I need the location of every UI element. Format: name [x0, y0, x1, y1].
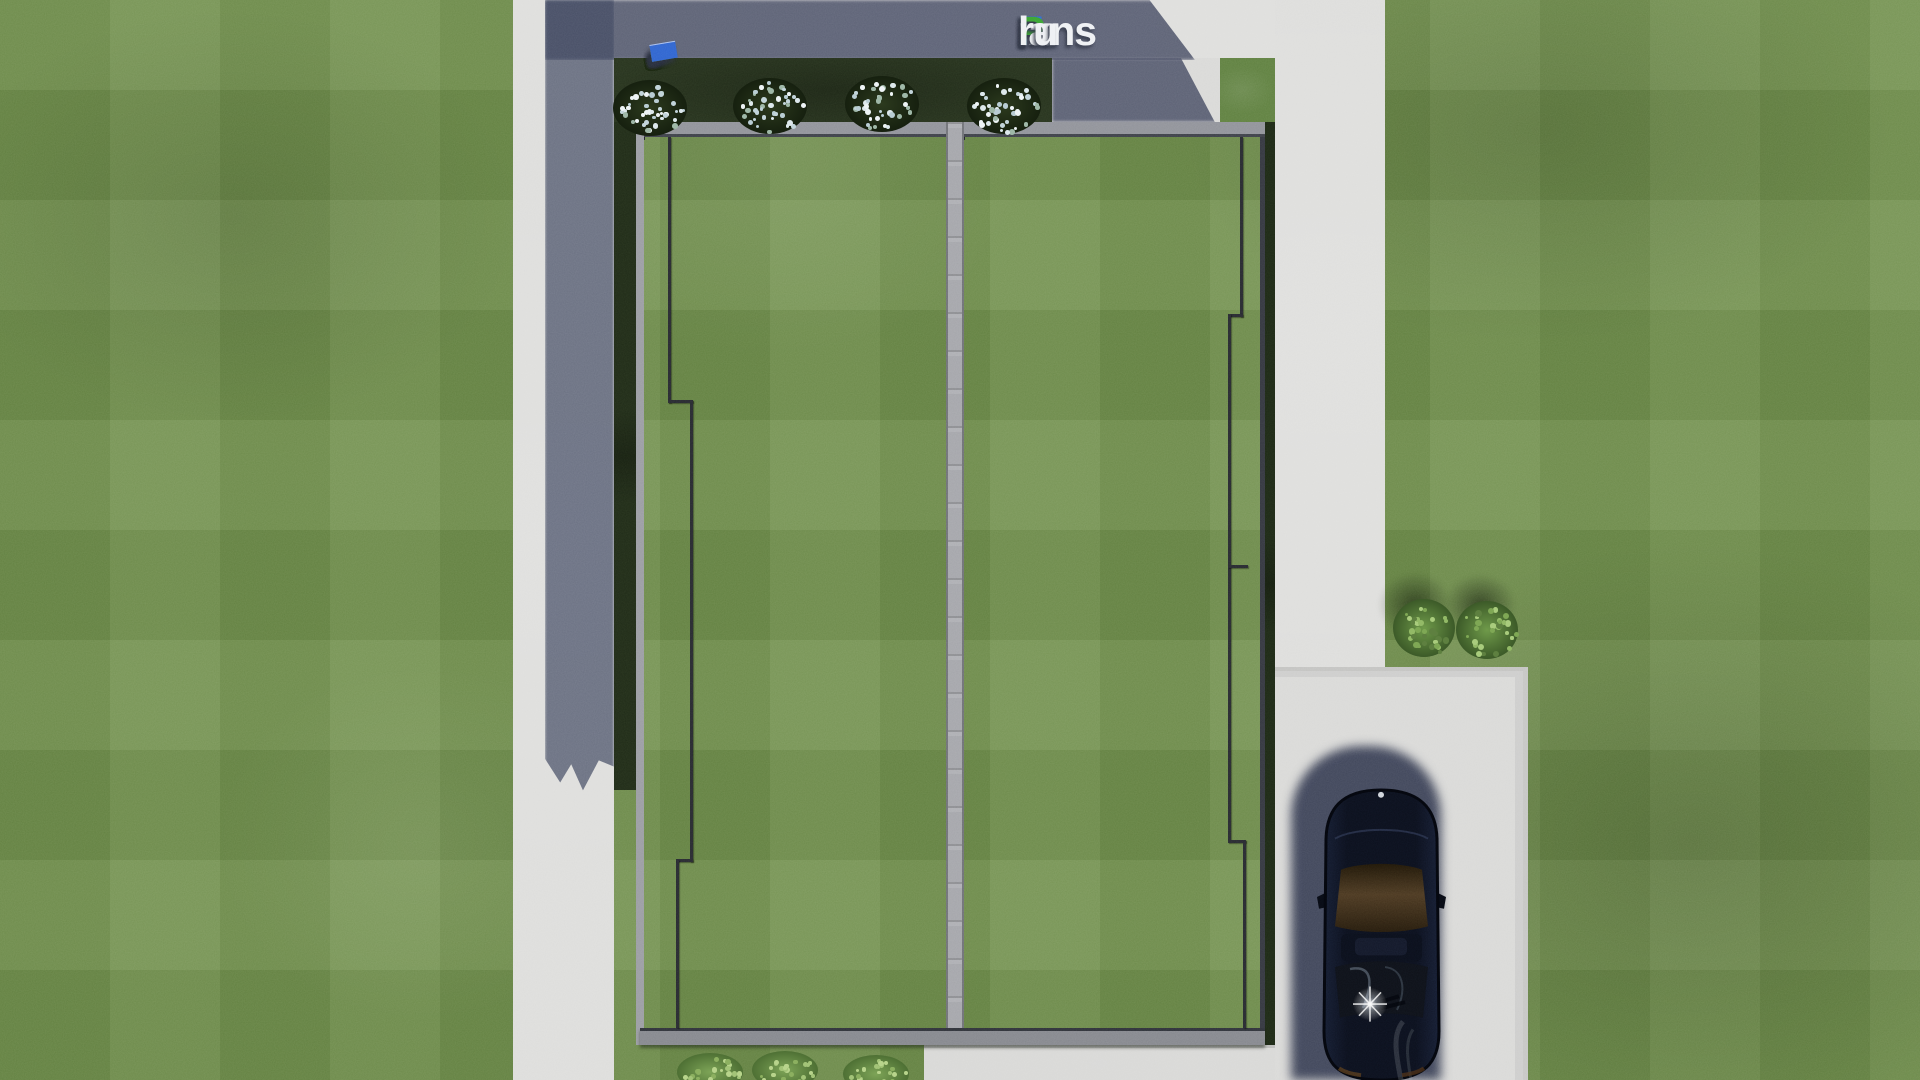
bush-dot [904, 1071, 908, 1075]
roof-cable [1240, 137, 1243, 317]
bush-dot [1423, 608, 1427, 612]
bush-dot [980, 105, 986, 111]
flower-bush [967, 78, 1041, 134]
bush-dot [900, 84, 906, 90]
bush-dot [756, 125, 759, 128]
bush-dot [875, 116, 880, 121]
bush-dot [774, 1060, 779, 1065]
bush-dot [784, 1064, 788, 1068]
bush-dot [1422, 629, 1427, 634]
roof-cable [676, 860, 679, 1028]
bush-dot [801, 1075, 806, 1080]
roof-cable [1228, 565, 1248, 568]
bush-dot [1503, 613, 1509, 619]
bush-dot [1490, 628, 1495, 633]
bush-dot [1474, 626, 1479, 631]
bush-dot [658, 107, 662, 111]
bush-dot [1001, 89, 1007, 95]
bush-dot [768, 103, 774, 109]
bush-dot [725, 1059, 731, 1065]
logo-letter: ru [1018, 8, 1057, 55]
bush-dot [633, 94, 638, 99]
bush-dot [620, 106, 625, 111]
bush-dot [1492, 624, 1496, 628]
bush-dot [761, 97, 767, 103]
bush-dot [741, 104, 745, 108]
bush-dot [626, 106, 630, 110]
bush-dot [720, 1069, 723, 1072]
render-scene: FixPlans.ru [0, 0, 1920, 1080]
bush-dot [1502, 620, 1506, 624]
roof-tile [964, 137, 965, 140]
bush-dot [873, 125, 878, 130]
bush-dot [655, 85, 660, 90]
bush-dot [1422, 634, 1426, 638]
bush-dot [748, 120, 753, 125]
bush-dot [1443, 637, 1450, 644]
bush-dot [642, 123, 646, 127]
bush-dot [688, 1076, 693, 1080]
bush-dot [889, 112, 895, 118]
bush-dot [879, 86, 885, 92]
bush-dot [742, 114, 747, 119]
bush-dot [1003, 103, 1008, 108]
bush-dot [1411, 634, 1416, 639]
bush-dot [868, 126, 872, 130]
bush-dot [903, 102, 908, 107]
bush-dot [767, 87, 771, 91]
bush-dot [1505, 631, 1509, 635]
bush-dot [1488, 608, 1494, 614]
bush-dot [877, 1071, 880, 1074]
roof-cable [668, 137, 671, 403]
bush-dot [997, 102, 1002, 107]
bush-dot [1430, 617, 1435, 622]
bush-dot [672, 123, 678, 129]
bush-dot [671, 101, 676, 106]
bush-dot [986, 121, 991, 126]
bush-dot [652, 116, 656, 120]
bush-dot [760, 107, 763, 110]
bush-dot [780, 113, 784, 117]
bush-dot [635, 119, 639, 123]
bush-dot [776, 96, 781, 101]
bush-dot [1472, 639, 1478, 645]
bush-dot [663, 113, 668, 118]
grass-patch-corner [1220, 58, 1275, 122]
bush-dot [782, 88, 786, 92]
bush-dot [755, 110, 759, 114]
bush-dot [789, 1072, 794, 1077]
roof-plane-right [964, 137, 1260, 1028]
bush-dot [886, 125, 890, 129]
roof-eaves-bottom [640, 1028, 1265, 1045]
bush-dot [1493, 651, 1499, 657]
bush-dot [641, 113, 645, 117]
green-bush [1456, 601, 1518, 659]
bush-dot [1008, 88, 1012, 92]
bush-dot [653, 123, 658, 128]
terrace [924, 1045, 1275, 1080]
bush-dot [1014, 127, 1017, 130]
bush-dot [989, 107, 995, 113]
bush-dot [645, 128, 651, 134]
bush-dot [879, 110, 882, 113]
bush-dot [866, 99, 870, 103]
bush-dot [784, 95, 787, 98]
bush-dot [644, 104, 648, 108]
bush-dot [908, 110, 913, 115]
bush-dot [1019, 95, 1024, 100]
bush-dot [877, 95, 883, 101]
bush-dot [852, 94, 857, 99]
bush-dot [628, 103, 631, 106]
bush-dot [623, 112, 628, 117]
bush-dot [1422, 641, 1427, 646]
bush-dot [890, 83, 896, 89]
bush-dot [984, 96, 988, 100]
roof-cable [1243, 840, 1246, 1028]
bush-dot [786, 103, 790, 107]
bush-dot [795, 98, 800, 103]
green-bush [1393, 599, 1455, 657]
bush-dot [749, 101, 754, 106]
bush-dot [714, 1057, 719, 1062]
roof-edge-right [1260, 137, 1265, 1028]
bush-dot [1466, 635, 1469, 638]
bush-dot [675, 110, 678, 113]
bush-dot [654, 99, 659, 104]
bush-dot [771, 1073, 776, 1078]
bush-dot [1035, 103, 1038, 106]
bush-dot [679, 109, 682, 112]
flower-bush [613, 80, 687, 136]
bush-dot [1465, 616, 1468, 619]
bush-dot [881, 114, 885, 118]
bush-dot [975, 102, 979, 106]
bush-dot [658, 91, 664, 97]
bush-dot [1418, 620, 1424, 626]
bush-dot [871, 87, 875, 91]
roof-cable [690, 400, 693, 862]
bush-dot [712, 1067, 718, 1073]
bush-dot [767, 81, 771, 85]
bush-dot [769, 1066, 773, 1070]
bush-dot [860, 85, 864, 89]
bush-dot [737, 1071, 743, 1077]
bush-dot [745, 108, 751, 114]
bush-dot [856, 1074, 861, 1079]
bush-dot [892, 1072, 897, 1077]
walkway-right [1275, 0, 1385, 667]
bush-dot [1476, 651, 1483, 658]
bush-dot [884, 1061, 888, 1065]
bush-dot [856, 1069, 859, 1072]
flower-bush [733, 78, 807, 134]
bush-dot [649, 92, 655, 98]
bush-dot [979, 122, 985, 128]
bush-dot [1475, 610, 1482, 617]
bush-dot [865, 109, 871, 115]
planting-bed-right [1265, 122, 1275, 1045]
bush-dot [1005, 120, 1009, 124]
bush-dot [897, 114, 902, 119]
bush-dot [639, 91, 644, 96]
bush-dot [1407, 616, 1412, 621]
bush-dot [869, 117, 873, 121]
bush-dot [787, 92, 791, 96]
bush-dot [793, 1060, 798, 1065]
bush-dot [650, 110, 654, 114]
bush-dot [909, 90, 913, 94]
bush-dot [801, 103, 806, 108]
bush-dot [767, 130, 771, 134]
house-shadow-left [545, 0, 614, 792]
bush-dot [696, 1077, 700, 1080]
bush-dot [696, 1069, 701, 1074]
bush-dot [1514, 632, 1519, 637]
bush-dot [1000, 123, 1005, 128]
bush-dot [1429, 628, 1436, 635]
bush-dot [1438, 650, 1442, 654]
bush-dot [862, 1067, 867, 1072]
bush-dot [673, 118, 677, 122]
bush-dot [630, 96, 634, 100]
bush-dot [1025, 94, 1031, 100]
bush-dot [1024, 88, 1029, 93]
bush-dot [996, 84, 999, 87]
bush-dot [1510, 636, 1513, 639]
bush-dot [1415, 627, 1421, 633]
bush-dot [1024, 122, 1028, 126]
bush-dot [811, 1074, 815, 1078]
roof-cable [1228, 314, 1231, 842]
roof-tile [644, 137, 645, 140]
bush-dot [1010, 106, 1014, 110]
bush-dot [753, 118, 756, 121]
bush-dot [759, 85, 763, 89]
bush-dot [732, 1071, 738, 1077]
bush-dot [1015, 110, 1021, 116]
bush-dot [856, 106, 861, 111]
bush-dot [762, 115, 767, 120]
bush-dot [753, 90, 758, 95]
bush-dot [725, 1066, 730, 1071]
bush-dot [1000, 129, 1003, 132]
bush-dot [849, 1075, 855, 1080]
bush-dot [803, 1062, 808, 1067]
bush-dot [1478, 644, 1484, 650]
car-top-view [1315, 788, 1448, 1080]
bush-dot [771, 117, 774, 120]
bush-dot [774, 112, 778, 116]
bush-dot [1417, 645, 1420, 648]
flower-bush [845, 76, 919, 132]
roof-trim-left [636, 122, 644, 1045]
bush-dot [902, 93, 908, 99]
bush-dot [890, 92, 893, 95]
roof-ridge [946, 122, 964, 1045]
